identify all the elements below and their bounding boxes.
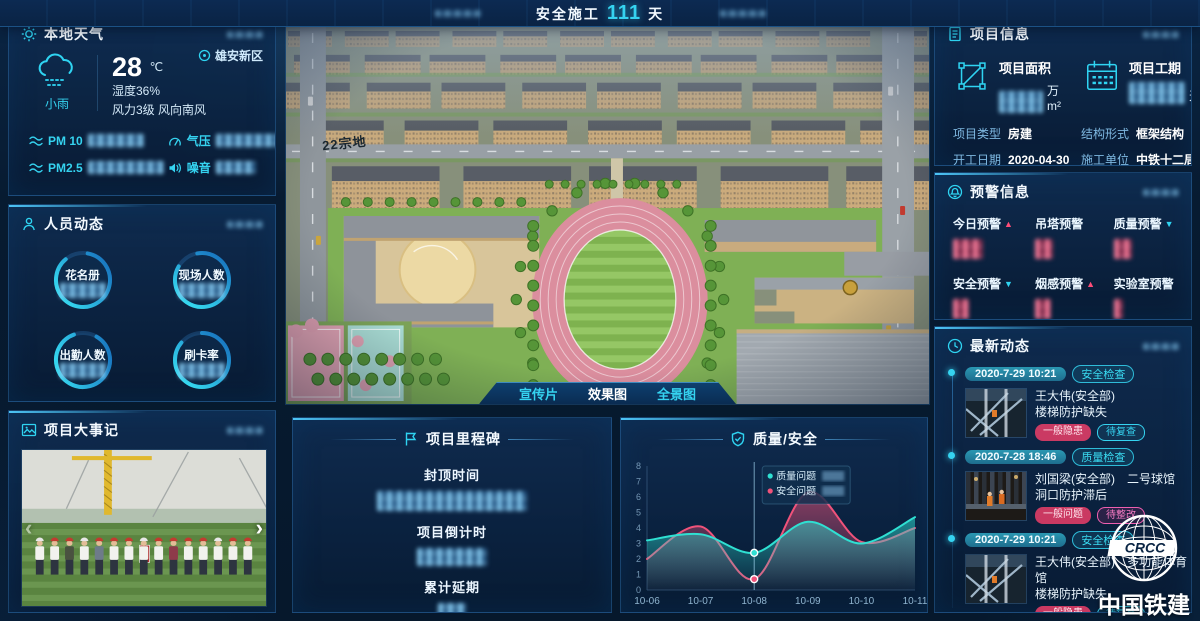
- safe-days-count: 111: [607, 2, 641, 25]
- temperature: 28 ℃: [112, 53, 206, 81]
- panel-deco: [227, 31, 263, 38]
- panel-deco: [227, 221, 263, 228]
- weather-title: 本地天气: [44, 24, 104, 44]
- warnings-title: 预警信息: [970, 182, 1030, 202]
- weather-metric: 噪音: [168, 159, 276, 176]
- personnel-ring-2: 现场人数: [167, 245, 237, 315]
- warning-cell: 质量预警▼: [1114, 215, 1185, 259]
- dashboard: 安全施工 111 天 22宗地 宣传片效果图全景图 本地天气 雄安新区: [0, 0, 1200, 621]
- panel-deco: [1143, 343, 1179, 350]
- timeline-line: [952, 369, 953, 608]
- info-stat-unit: 万m²: [1047, 82, 1061, 113]
- info-field-value: 房建: [1008, 125, 1032, 142]
- update-body: 王大伟(安全部)楼梯防护缺失一般隐患待复查: [965, 388, 1191, 441]
- update-photo-steel-structure: [965, 388, 1027, 438]
- event-photo: ‹ ›: [21, 449, 267, 607]
- aqi-icon: [29, 134, 43, 148]
- trend-down-icon: ▼: [1165, 219, 1174, 229]
- update-badges: 一般隐患待复查: [1035, 424, 1145, 441]
- weather-condition: 小雨: [29, 53, 85, 112]
- warning-label: 实验室预警: [1114, 275, 1185, 292]
- weather-metric-label: PM2.5: [48, 161, 83, 175]
- alarm-bell-icon: [947, 184, 963, 200]
- humidity: 湿度36%: [112, 83, 206, 100]
- weather-metric: 气压: [168, 132, 276, 149]
- info-field: 结构形式框架结构: [1081, 125, 1192, 142]
- personnel-ring-3: 出勤人数: [48, 325, 118, 395]
- milestone-value-blurred: [417, 548, 487, 566]
- warning-label: 烟感预警▲: [1035, 275, 1114, 292]
- panel-deco: [227, 427, 263, 434]
- timeline-dot: [948, 452, 955, 459]
- warnings-header: 预警信息: [935, 173, 1191, 207]
- milestone-title: 项目里程碑: [426, 429, 501, 449]
- status-badge: 一般隐患: [1035, 606, 1091, 613]
- update-person-line: 王大伟(安全部): [1035, 388, 1145, 404]
- weather-metric-value-blurred: [216, 134, 276, 147]
- photo-next-arrow[interactable]: ›: [256, 517, 263, 539]
- update-photo-formwork-workers: [965, 471, 1027, 521]
- header-deco-right: [720, 10, 766, 17]
- svg-text:7: 7: [636, 477, 641, 487]
- warning-label: 安全预警▼: [953, 275, 1035, 292]
- svg-text:CRCC: CRCC: [1125, 540, 1166, 556]
- svg-text:0: 0: [636, 585, 641, 595]
- warning-count-blurred: [953, 239, 983, 259]
- view-button-全景图[interactable]: 全景图: [657, 384, 696, 403]
- view-mode-switcher: 宣传片效果图全景图: [479, 382, 736, 404]
- warning-cell: 今日预警▲: [953, 215, 1035, 259]
- update-date: 2020-7-28 18:46: [965, 450, 1066, 464]
- page-title-suffix: 天: [648, 4, 664, 24]
- info-stat-value-blurred: [1129, 82, 1185, 104]
- info-field-label: 施工单位: [1081, 151, 1129, 166]
- warning-cell: 吊塔预警: [1035, 215, 1114, 259]
- svg-text:2: 2: [636, 554, 641, 564]
- weather-metric-value-blurred: [88, 134, 144, 147]
- events-title: 项目大事记: [44, 420, 119, 440]
- svg-text:10-06: 10-06: [634, 596, 660, 607]
- group-photo: [22, 450, 266, 606]
- update-item-1[interactable]: 2020-7-29 10:21安全检查王大伟(安全部)楼梯防护缺失一般隐患待复查: [965, 365, 1191, 441]
- ring-value: [179, 283, 225, 303]
- wind: 风力3级 风向南风: [112, 102, 206, 119]
- weather-metric: PM2.5: [29, 159, 164, 176]
- info-field-label: 开工日期: [953, 151, 1001, 166]
- ring-value-blurred: [179, 363, 225, 378]
- info-stat-label: 项目面积: [999, 58, 1061, 77]
- info-stat-label: 项目工期: [1129, 58, 1192, 77]
- ring-label: 刷卡率: [167, 347, 237, 363]
- header-line: [508, 439, 574, 440]
- info-fields: 项目类型房建结构形式框架结构开工日期2020-04-30施工单位中铁十二局监理单…: [935, 115, 1191, 166]
- quality-safety-chart[interactable]: 01234567810-0610-0710-0810-0910-1010-11质…: [621, 452, 928, 612]
- trend-down-icon: ▼: [1004, 279, 1013, 289]
- svg-text:8: 8: [636, 461, 641, 471]
- info-field-value: 中铁十二局: [1136, 151, 1192, 166]
- weather-metrics: PM 10气压PM2.5噪音: [9, 119, 275, 176]
- weather-metric-value-blurred: [216, 161, 256, 174]
- view-button-效果图[interactable]: 效果图: [588, 384, 627, 403]
- svg-text:安全问题: 安全问题: [776, 485, 816, 498]
- sun-icon: [21, 26, 37, 42]
- weather-metric-label: 气压: [187, 132, 211, 149]
- ring-value-blurred: [60, 283, 106, 298]
- flag-icon: [403, 431, 419, 447]
- ring-label: 现场人数: [167, 267, 237, 283]
- weather-metric: PM 10: [29, 132, 164, 149]
- warning-cell: 安全预警▼: [953, 275, 1035, 319]
- warning-label: 今日预警▲: [953, 215, 1035, 232]
- info-stat-value: 天: [1129, 82, 1192, 104]
- location-pin-icon: [198, 49, 211, 62]
- svg-text:6: 6: [636, 492, 641, 502]
- shield-check-icon: [730, 431, 746, 447]
- photo-album-icon: [21, 422, 37, 438]
- weather-metric-label: PM 10: [48, 134, 83, 148]
- ring-label: 出勤人数: [48, 347, 118, 363]
- header-deco-left: [435, 10, 481, 17]
- page-title-prefix: 安全施工: [536, 4, 600, 24]
- ring-value-blurred: [179, 283, 225, 298]
- personnel-title: 人员动态: [44, 214, 104, 234]
- update-person: 王大伟(安全部): [1035, 389, 1115, 403]
- divider: [97, 55, 98, 111]
- info-stat-value: 万m²: [999, 82, 1061, 113]
- svg-text:10-09: 10-09: [795, 596, 821, 607]
- update-issue: 洞口防护滞后: [1035, 487, 1175, 503]
- info-field-value: 2020-04-30: [1008, 153, 1069, 166]
- info-stat: 项目工期天: [1083, 57, 1192, 113]
- personnel-rings: 花名册现场人数出勤人数刷卡率: [9, 239, 275, 395]
- project-info-panel: 项目信息 项目面积万m²项目工期天 项目类型房建结构形式框架结构开工日期2020…: [934, 14, 1192, 166]
- crcc-logo: CRCC 中国铁建: [1086, 513, 1200, 620]
- trend-up-icon: ▲: [1086, 279, 1095, 289]
- update-person-line: 刘国梁(安全部)二号球馆: [1035, 471, 1175, 487]
- document-icon: [947, 26, 963, 42]
- warning-cell: 实验室预警: [1114, 275, 1185, 319]
- aqi-icon: [29, 161, 43, 175]
- panel-deco: [1143, 189, 1179, 196]
- speaker-icon: [168, 161, 182, 175]
- events-header: 项目大事记: [9, 411, 275, 445]
- aerial-render: [286, 27, 929, 404]
- update-photo-steel-structure: [965, 554, 1027, 604]
- info-stat-unit: 天: [1189, 87, 1192, 104]
- update-person: 刘国梁(安全部): [1035, 472, 1115, 486]
- info-stat-text: 项目面积万m²: [999, 57, 1061, 113]
- update-date: 2020-7-29 10:21: [965, 367, 1066, 381]
- milestone-label: 累计延期: [424, 577, 480, 596]
- weather-metric-label: 噪音: [187, 159, 211, 176]
- calendar-icon: [1083, 57, 1121, 95]
- warning-count-blurred: [1114, 299, 1123, 319]
- personnel-panel: 人员动态 花名册现场人数出勤人数刷卡率: [8, 204, 276, 402]
- weather-metric-value-blurred: [88, 161, 164, 174]
- warning-count-blurred: [1114, 239, 1132, 259]
- status-badge: 一般问题: [1035, 507, 1091, 524]
- photo-prev-arrow[interactable]: ‹: [25, 517, 32, 539]
- status-badge: 待复查: [1097, 424, 1145, 441]
- crcc-globe-icon: CRCC: [1107, 513, 1181, 585]
- panel-deco: [1143, 31, 1179, 38]
- clock-icon: [947, 338, 963, 354]
- svg-text:10-10: 10-10: [849, 596, 875, 607]
- quality-safety-panel: 质量/安全 01234567810-0610-0710-0810-0910-10…: [620, 417, 928, 613]
- milestone-header: 项目里程碑: [293, 418, 611, 454]
- ring-value-blurred: [60, 363, 106, 378]
- svg-text:1: 1: [636, 570, 641, 580]
- top-header: 安全施工 111 天: [0, 0, 1200, 27]
- milestone-value-blurred: [438, 603, 466, 613]
- trend-up-icon: ▲: [1004, 219, 1013, 229]
- update-meta: 2020-7-29 10:21安全检查: [965, 365, 1191, 383]
- warning-count-blurred: [1035, 239, 1053, 259]
- person-icon: [21, 216, 37, 232]
- milestone-items: 封顶时间项目倒计时累计延期: [293, 454, 611, 613]
- location-label: 雄安新区: [215, 47, 263, 64]
- personnel-ring-4: 刷卡率: [167, 325, 237, 395]
- milestone-label: 封顶时间: [424, 465, 480, 484]
- gauge-icon: [168, 134, 182, 148]
- info-field-label: 项目类型: [953, 125, 1001, 142]
- update-text: 王大伟(安全部)楼梯防护缺失一般隐患待复查: [1035, 388, 1145, 441]
- aerial-view-panel: 22宗地 宣传片效果图全景图: [285, 26, 930, 405]
- warning-label: 质量预警▼: [1114, 215, 1185, 232]
- header-line: [825, 439, 891, 440]
- personnel-header: 人员动态: [9, 205, 275, 239]
- personnel-ring-1: 花名册: [48, 245, 118, 315]
- warning-count-blurred: [953, 299, 969, 319]
- ring-value: [179, 363, 225, 383]
- warning-label: 吊塔预警: [1035, 215, 1114, 232]
- header-line: [330, 439, 396, 440]
- ring-value: [60, 283, 106, 303]
- updates-header: 最新动态: [935, 327, 1191, 361]
- info-field: 开工日期2020-04-30: [953, 151, 1077, 166]
- warning-count-blurred: [1035, 299, 1051, 319]
- rain-cloud-icon: [34, 53, 80, 89]
- svg-text:10-08: 10-08: [741, 596, 767, 607]
- info-title: 项目信息: [970, 24, 1030, 44]
- update-category: 质量检查: [1072, 448, 1134, 466]
- ring-label: 花名册: [48, 267, 118, 283]
- info-stat: 项目面积万m²: [953, 57, 1061, 113]
- page-title: 安全施工 111 天: [536, 2, 664, 25]
- status-badge: 一般隐患: [1035, 424, 1091, 441]
- timeline-dot: [948, 369, 955, 376]
- info-stats: 项目面积万m²项目工期天: [935, 49, 1191, 115]
- crcc-logo-text: 中国铁建: [1086, 586, 1200, 620]
- ring-value: [60, 363, 106, 383]
- info-field-value: 框架结构: [1136, 125, 1184, 142]
- warnings-grid: 今日预警▲吊塔预警质量预警▼安全预警▼烟感预警▲实验室预警: [935, 207, 1191, 319]
- svg-text:10-11: 10-11: [903, 596, 928, 607]
- location-badge: 雄安新区: [198, 47, 263, 64]
- milestone-panel: 项目里程碑 封顶时间项目倒计时累计延期: [292, 417, 612, 613]
- svg-text:10-07: 10-07: [688, 596, 714, 607]
- warnings-panel: 预警信息 今日预警▲吊塔预警质量预警▼安全预警▼烟感预警▲实验室预警: [934, 172, 1192, 320]
- condition-label: 小雨: [29, 95, 85, 112]
- svg-text:3: 3: [636, 539, 641, 549]
- update-location: 二号球馆: [1127, 472, 1175, 486]
- svg-text:5: 5: [636, 508, 641, 518]
- update-issue: 楼梯防护缺失: [1035, 404, 1145, 420]
- info-stat-value-blurred: [999, 91, 1043, 113]
- view-button-宣传片[interactable]: 宣传片: [519, 384, 558, 403]
- update-date: 2020-7-29 10:21: [965, 533, 1066, 547]
- milestone-label: 项目倒计时: [417, 522, 487, 541]
- svg-text:质量问题: 质量问题: [776, 470, 816, 483]
- area-icon: [953, 57, 991, 95]
- timeline-dot: [948, 535, 955, 542]
- milestone-value-blurred: [377, 491, 527, 511]
- weather-detail: 28 ℃ 湿度36% 风力3级 风向南风: [112, 53, 206, 119]
- info-field-label: 结构形式: [1081, 125, 1129, 142]
- svg-text:4: 4: [636, 523, 641, 533]
- milestone-photo-panel: 项目大事记 ‹ ›: [8, 410, 276, 613]
- header-line: [657, 439, 723, 440]
- info-field: 项目类型房建: [953, 125, 1077, 142]
- update-category: 安全检查: [1072, 365, 1134, 383]
- chart-title: 质量/安全: [753, 429, 818, 449]
- info-stat-text: 项目工期天: [1129, 57, 1192, 113]
- updates-title: 最新动态: [970, 336, 1030, 356]
- warning-cell: 烟感预警▲: [1035, 275, 1114, 319]
- update-meta: 2020-7-28 18:46质量检查: [965, 448, 1191, 466]
- info-field: 施工单位中铁十二局: [1081, 151, 1192, 166]
- weather-panel: 本地天气 雄安新区 小雨 28 ℃ 湿度36% 风力3级 风向南风: [8, 14, 276, 196]
- chart-header: 质量/安全: [621, 418, 927, 454]
